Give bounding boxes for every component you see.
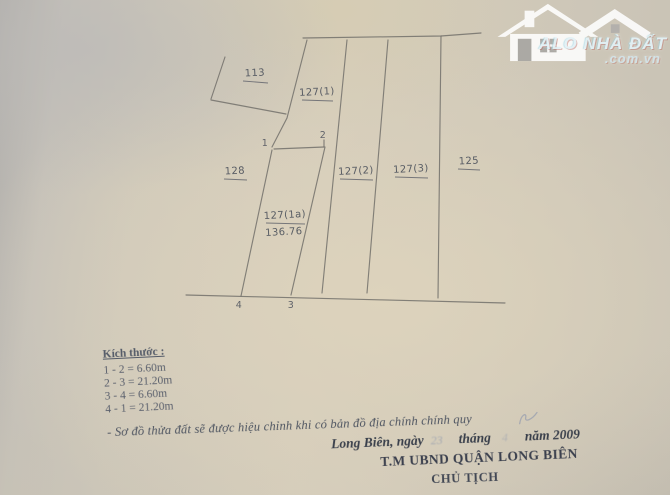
handwritten-month: 4: [502, 430, 509, 444]
boundary-125-left-line: [438, 36, 441, 298]
point-label-2: 2: [320, 130, 326, 141]
point-label-4: 4: [236, 300, 242, 311]
date-month-label: tháng: [458, 430, 491, 446]
parcel-label-127-2: 127(2): [338, 165, 374, 178]
point-label-3: 3: [288, 300, 294, 311]
parcel-label-127-1: 127(1): [299, 86, 335, 99]
document-photo: ALO NHÀ ĐẤT .com.vn 113 127(1) 128 127(2…: [0, 0, 670, 495]
north-boundary-line: [303, 33, 481, 38]
handwritten-day: 23: [430, 433, 443, 447]
road-edge-line: [186, 295, 505, 303]
dimensions-block: Kích thước : 1 - 2 = 6.60m 2 - 3 = 21.20…: [102, 345, 173, 416]
parcel-113-left-line: [211, 57, 225, 99]
point-label-1: 1: [262, 138, 268, 149]
label-underline: [395, 177, 428, 178]
label-underline: [243, 81, 268, 83]
parcel-label-128: 128: [224, 165, 245, 177]
date-year-label: năm 2009: [525, 426, 581, 443]
line-1-2: [274, 147, 324, 149]
parcel-label-127-3: 127(3): [393, 163, 429, 176]
parcel-label-125: 125: [458, 155, 479, 167]
fraction-bar: [266, 223, 305, 224]
label-underline: [224, 179, 247, 180]
parcel-113-bottom-line: [211, 100, 286, 114]
label-underline: [458, 169, 480, 170]
line-2-3: [291, 147, 325, 295]
parcel-label-113: 113: [244, 67, 265, 79]
label-underline: [340, 179, 373, 180]
parcel-label-127-1a: 127(1a): [264, 209, 307, 222]
parcel-area-127-1a: 136.76: [265, 226, 303, 239]
label-underline: [302, 100, 333, 101]
date-place-prefix: Long Biên, ngày: [331, 433, 424, 452]
dimensions-title: Kích thước :: [102, 345, 171, 361]
